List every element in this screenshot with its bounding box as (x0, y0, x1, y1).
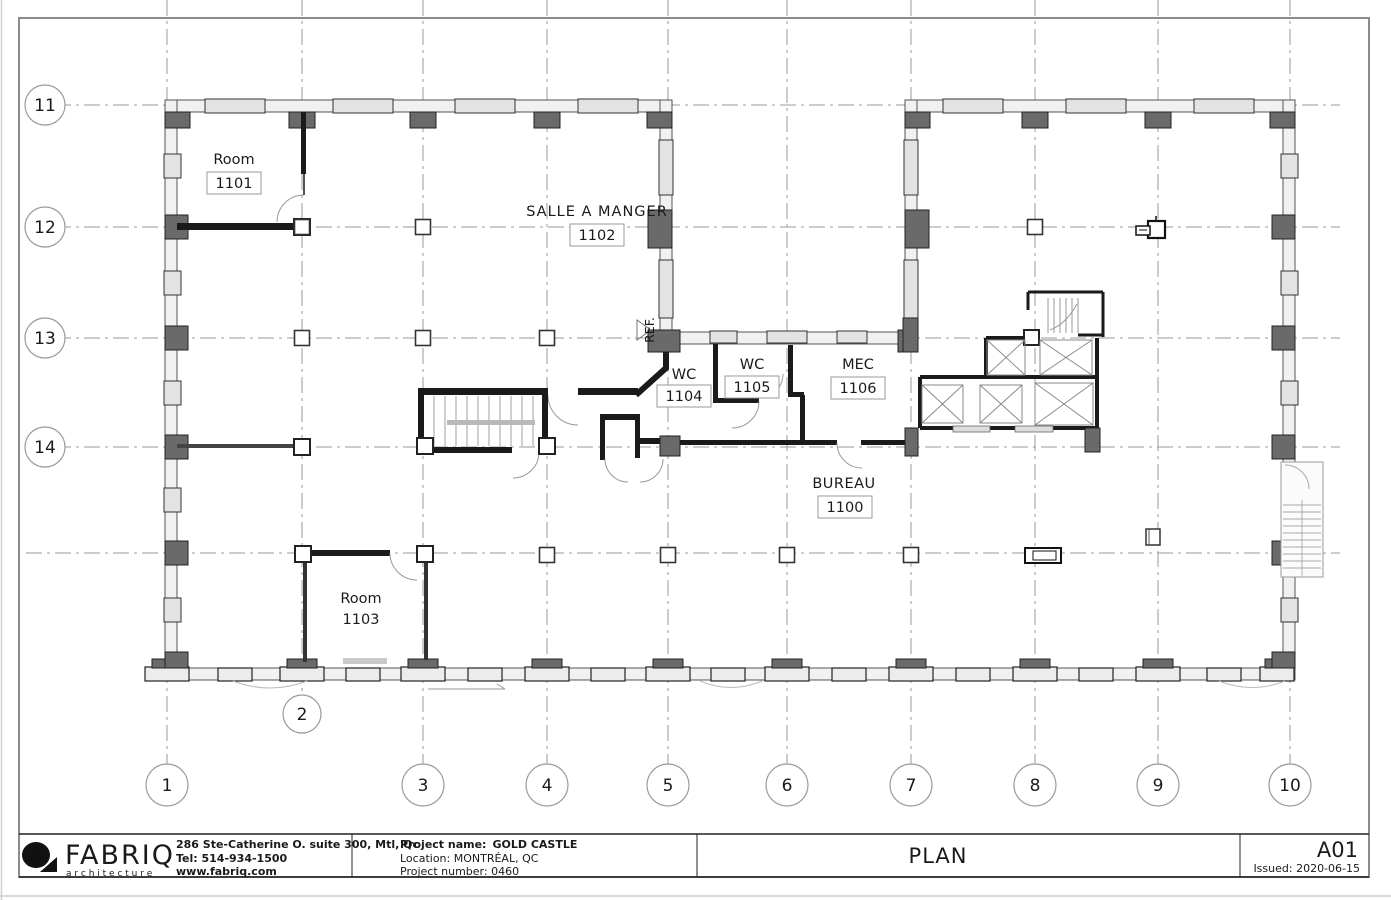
mec-name: MEC (842, 357, 874, 373)
grid-row-12: 12 (34, 218, 56, 238)
wc-1105-name: WC (740, 357, 764, 373)
grid-col-8: 8 (1030, 776, 1041, 796)
firm-tagline: a r c h i t e c t u r e (66, 869, 153, 879)
sheet-issued-date: Issued: 2020-06-15 (1253, 862, 1360, 875)
top-wall-windows (205, 99, 1254, 113)
mec-number: 1106 (840, 381, 877, 397)
grid-col-10: 10 (1279, 776, 1301, 796)
drawing-sheet: Room 1101 SALLE A MANGER 1102 REF. WC 11… (0, 0, 1391, 900)
project-name-label: Project name: (400, 838, 486, 851)
wc-1104-name: WC (672, 367, 696, 383)
side-wall-columns (165, 210, 1295, 668)
wc-1104-number: 1104 (666, 389, 703, 405)
fabriq-logo-icon (22, 842, 57, 872)
grid-col-7: 7 (906, 776, 917, 796)
salle-number: 1102 (579, 228, 616, 244)
ref-label: REF. (642, 317, 657, 343)
exterior-stair (1281, 462, 1323, 577)
wc-1105-number: 1105 (734, 380, 771, 396)
room-1103-number: 1103 (343, 612, 380, 628)
top-wall-columns (165, 112, 1295, 128)
grid-col-4: 4 (542, 776, 553, 796)
grid-col-2: 2 (297, 705, 308, 725)
title-block: FABRIQ a r c h i t e c t u r e 286 Ste-C… (19, 18, 1369, 879)
grid-col-1: 1 (162, 776, 173, 796)
room-1101-number: 1101 (216, 176, 253, 192)
project-number: Project number: 0460 (400, 865, 519, 878)
firm-name: FABRIQ (65, 840, 175, 871)
firm-address: 286 Ste-Catherine O. suite 300, Mtl, Qc (176, 838, 419, 851)
grid-row-13: 13 (34, 329, 56, 349)
grid-col-5: 5 (663, 776, 674, 796)
bureau-name: BUREAU (812, 476, 875, 492)
sheet-number: A01 (1317, 838, 1358, 862)
firm-tel: Tel: 514-934-1500 (176, 852, 288, 865)
svg-text:Project name:GOLD CASTLE: Project name:GOLD CASTLE (400, 838, 577, 851)
exterior-ground-marks (233, 681, 1285, 689)
grid-row-11: 11 (34, 96, 56, 116)
grid-row-14: 14 (34, 438, 56, 458)
elevator-core (905, 292, 1103, 456)
bureau-number: 1100 (827, 500, 864, 516)
room-1103-name: Room (340, 591, 381, 607)
floor-plan-svg: Room 1101 SALLE A MANGER 1102 REF. WC 11… (0, 0, 1391, 900)
stub-wall-row14 (177, 439, 310, 455)
project-location: Location: MONTRÉAL, QC (400, 852, 539, 865)
sheet-title: PLAN (909, 844, 968, 868)
room-1101-name: Room (213, 152, 254, 168)
paper-edges (0, 0, 1391, 900)
project-name: GOLD CASTLE (492, 838, 577, 851)
grid-col-9: 9 (1153, 776, 1164, 796)
firm-web: www.fabriq.com (176, 865, 277, 878)
grid-col-6: 6 (782, 776, 793, 796)
salle-name: SALLE A MANGER (526, 204, 668, 220)
grid-col-3: 3 (418, 776, 429, 796)
